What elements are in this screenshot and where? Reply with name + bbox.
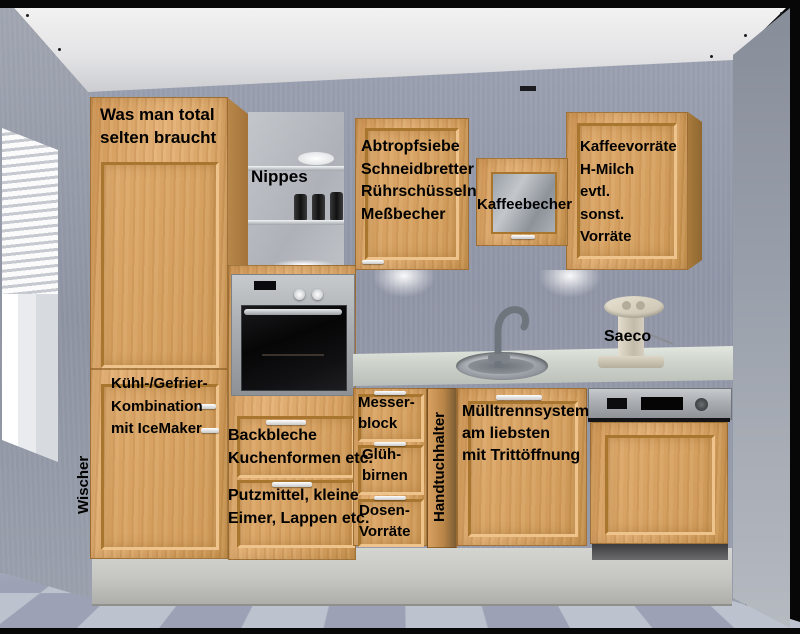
cabinet-handle — [362, 260, 384, 264]
right-wall — [730, 0, 800, 634]
shelf-canister-icon — [312, 194, 325, 220]
oven-knob-icon — [294, 289, 305, 300]
oven-handle — [244, 309, 342, 315]
label-rarely-used: Was man total selten braucht — [100, 104, 238, 150]
window — [2, 128, 58, 462]
shelf-canister-icon — [294, 194, 307, 220]
oven-door-reflection — [262, 354, 324, 356]
ceiling-dot — [710, 55, 713, 58]
label-bulbs: Glüh- birnen — [362, 444, 424, 486]
dishwasher-panel-inset — [605, 435, 715, 535]
label-coffee-supplies: Kaffeevorräte H-Milch evtl. sonst. Vorrä… — [580, 136, 698, 249]
dishwasher-display — [641, 397, 683, 410]
kitchen-scene: Was man total selten braucht Nippes Abtr… — [0, 0, 800, 634]
ceiling-dot — [58, 48, 61, 51]
oven-knob-icon — [312, 289, 323, 300]
faucet-icon — [480, 296, 544, 368]
label-waste-system: Mülltrennsystem am liebsten mit Trittöff… — [462, 401, 617, 467]
oven-display — [254, 281, 276, 290]
label-coffee-machine: Saeco — [604, 326, 662, 347]
label-coffee-mugs: Kaffeebecher — [477, 195, 589, 215]
label-cans: Dosen- Vorräte — [359, 500, 423, 542]
tall-cabinet — [90, 97, 228, 559]
glass-shelf — [248, 220, 344, 225]
dishwasher-recess — [592, 544, 728, 560]
shelf-dish-icon — [298, 152, 334, 165]
coffee-machine-top — [604, 296, 664, 318]
tall-cabinet-door-upper — [101, 162, 219, 368]
label-fridge: Kühl-/Gefrier- Kombination mit IceMaker — [111, 373, 223, 441]
ceiling-dot — [26, 14, 29, 17]
cabinet-handle — [511, 235, 535, 239]
label-knife-block: Messer- block — [358, 392, 422, 434]
shelf-canister-icon — [330, 192, 343, 220]
ceiling-dot — [744, 34, 747, 37]
window-pane — [2, 294, 58, 462]
cabinet-handle — [496, 395, 542, 400]
cabinet-divider — [91, 368, 227, 370]
oven-door — [241, 305, 347, 391]
window-blinds-icon — [2, 128, 58, 296]
open-shelf-unit — [248, 112, 344, 274]
under-cabinet-light-left — [366, 270, 442, 318]
coffee-machine-base — [598, 356, 664, 368]
label-nippes: Nippes — [251, 166, 331, 189]
oven — [231, 274, 355, 396]
coffee-machine-dial-icon — [622, 301, 631, 310]
coffee-machine-dial-icon — [636, 301, 645, 310]
dishwasher-knob-icon — [695, 398, 708, 411]
wall-vent-icon — [520, 86, 536, 91]
label-towel-rail: Handtuchhalter — [430, 390, 450, 522]
label-draining: Abtropfsiebe Schneidbretter Rührschüssel… — [361, 136, 491, 227]
label-wiper: Wischer — [74, 452, 94, 514]
